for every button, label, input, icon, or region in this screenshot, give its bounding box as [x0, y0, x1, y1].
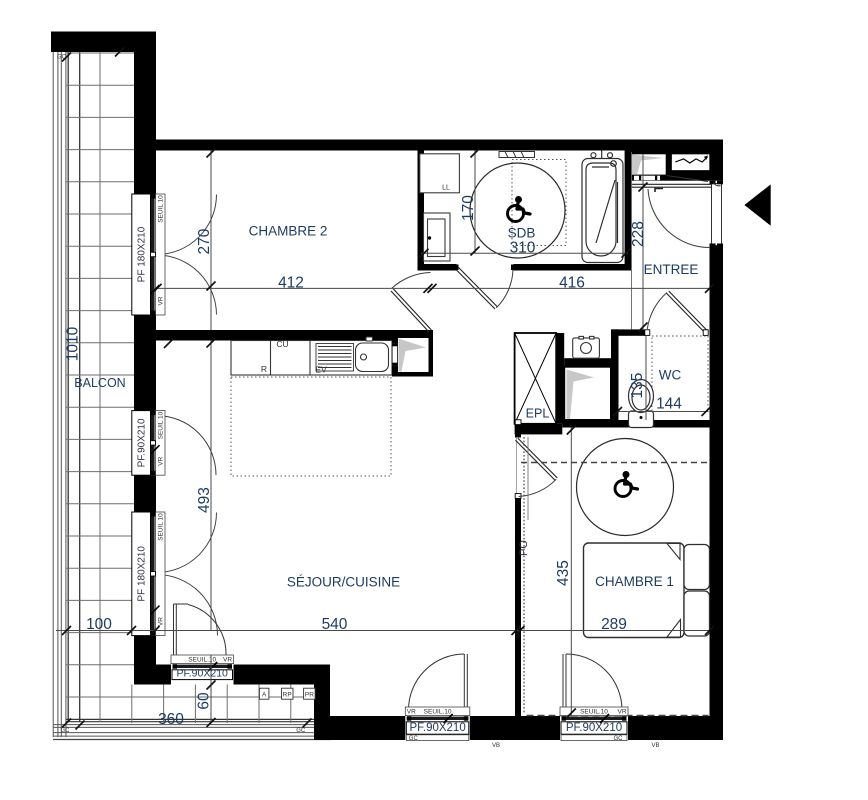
svg-text:VR: VR: [158, 617, 165, 626]
svg-text:SÉJOUR/CUISINE: SÉJOUR/CUISINE: [287, 575, 400, 590]
svg-text:60: 60: [196, 692, 213, 710]
svg-text:PF 180X210: PF 180X210: [137, 546, 148, 602]
svg-text:SDB: SDB: [508, 226, 536, 241]
svg-text:VR: VR: [158, 296, 165, 305]
svg-text:RP: RP: [283, 692, 292, 699]
svg-text:CHAMBRE 1: CHAMBRE 1: [595, 574, 674, 589]
svg-text:SEUIL 10: SEUIL 10: [158, 411, 165, 439]
svg-text:360: 360: [158, 711, 184, 728]
svg-text:SEUIL 10: SEUIL 10: [158, 195, 165, 223]
svg-text:SEUIL.10: SEUIL.10: [424, 709, 452, 716]
svg-text:PF.90X210: PF.90X210: [177, 668, 229, 680]
svg-text:540: 540: [322, 616, 348, 633]
svg-text:412: 412: [278, 275, 304, 292]
svg-text:VB: VB: [492, 743, 500, 749]
svg-text:GC: GC: [61, 728, 71, 734]
svg-text:493: 493: [196, 487, 213, 513]
svg-text:GC: GC: [296, 728, 306, 734]
svg-text:EPL: EPL: [526, 407, 550, 421]
svg-text:GC: GC: [409, 736, 419, 742]
svg-text:VR: VR: [407, 709, 416, 716]
svg-text:VR: VR: [223, 657, 232, 664]
svg-text:PF.90X210: PF.90X210: [566, 722, 622, 734]
svg-text:VB: VB: [651, 743, 659, 749]
svg-text:100: 100: [86, 616, 112, 633]
svg-text:A: A: [262, 692, 267, 699]
svg-text:VR: VR: [158, 456, 165, 465]
svg-text:PF.90X210: PF.90X210: [409, 722, 465, 734]
svg-text:228: 228: [630, 221, 647, 247]
svg-text:LL: LL: [442, 185, 450, 192]
svg-text:GC: GC: [57, 55, 67, 61]
svg-text:289: 289: [601, 616, 627, 633]
svg-text:BALCON: BALCON: [74, 376, 125, 390]
svg-text:VR: VR: [617, 709, 626, 716]
svg-text:ENTREE: ENTREE: [644, 262, 699, 277]
svg-text:EV: EV: [315, 365, 327, 375]
svg-text:PF.90X210: PF.90X210: [137, 418, 148, 467]
svg-text:SEUIL.10: SEUIL.10: [580, 709, 608, 716]
svg-text:SEUIL.10: SEUIL.10: [188, 657, 216, 664]
svg-text:270: 270: [196, 228, 213, 254]
svg-text:PR: PR: [305, 692, 314, 699]
svg-text:PO: PO: [518, 540, 530, 556]
svg-text:SEUIL 10: SEUIL 10: [158, 513, 165, 541]
svg-text:310: 310: [510, 239, 536, 256]
svg-text:GC: GC: [614, 736, 624, 742]
svg-text:1010: 1010: [65, 326, 82, 361]
svg-text:416: 416: [559, 275, 585, 292]
svg-text:R: R: [261, 364, 267, 374]
svg-text:170: 170: [460, 195, 477, 221]
svg-text:CHAMBRE 2: CHAMBRE 2: [249, 224, 328, 239]
svg-text:PF 180X210: PF 180X210: [137, 226, 148, 282]
svg-text:135: 135: [629, 373, 646, 399]
svg-text:CU: CU: [276, 339, 288, 349]
svg-text:435: 435: [555, 560, 572, 586]
svg-text:144: 144: [656, 396, 682, 413]
svg-text:WC: WC: [659, 368, 682, 383]
